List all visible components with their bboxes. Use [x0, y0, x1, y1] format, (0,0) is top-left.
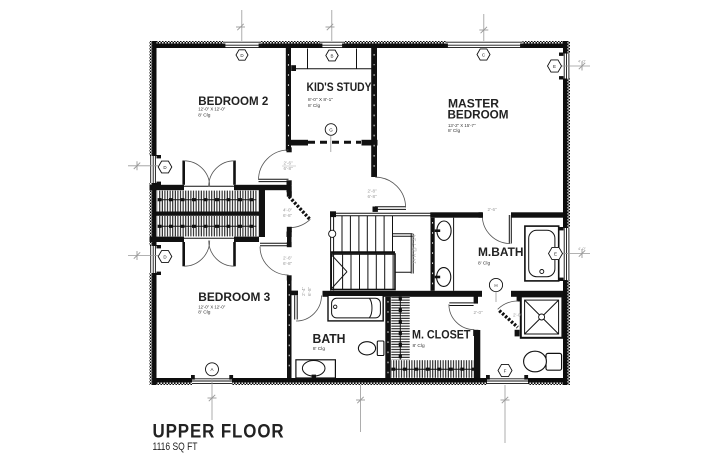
svg-text:2'-6": 2'-6": [283, 256, 293, 261]
svg-text:A: A: [210, 367, 213, 372]
svg-text:8' Clg: 8' Clg: [478, 260, 490, 266]
svg-text:2'-4": 2'-4": [301, 286, 306, 296]
svg-text:6'-8": 6'-8": [283, 261, 293, 266]
svg-text:2'-0": 2'-0": [474, 310, 484, 315]
svg-text:8' Clg: 8' Clg: [308, 103, 320, 109]
svg-text:KID'S STUDY: KID'S STUDY: [307, 80, 372, 94]
svg-text:8' Clg: 8' Clg: [448, 128, 460, 134]
svg-text:M. CLOSET: M. CLOSET: [412, 328, 471, 342]
svg-text:BEDROOM: BEDROOM: [448, 109, 509, 121]
svg-text:2'-0": 2'-0": [513, 313, 523, 318]
svg-text:8' Clg: 8' Clg: [313, 346, 325, 352]
svg-text:M.BATH: M.BATH: [478, 245, 524, 259]
svg-text:2'-6": 2'-6": [488, 207, 498, 212]
svg-text:B: B: [330, 53, 333, 58]
svg-text:14 R @ 7 3/4": 14 R @ 7 3/4": [412, 232, 418, 264]
svg-text:8'-0" X 8'-1": 8'-0" X 8'-1": [308, 97, 333, 103]
svg-text:UPPER FLOOR: UPPER FLOOR: [153, 422, 285, 443]
svg-text:BEDROOM 2: BEDROOM 2: [198, 96, 268, 108]
svg-text:G: G: [329, 127, 333, 132]
svg-text:8' Clg: 8' Clg: [413, 343, 425, 349]
svg-text:6'-8": 6'-8": [283, 213, 293, 218]
svg-text:8' Clg: 8' Clg: [198, 310, 210, 316]
svg-text:6'-8": 6'-8": [307, 286, 312, 296]
svg-text:2'-8": 2'-8": [368, 189, 378, 194]
svg-text:8' Clg: 8' Clg: [198, 113, 210, 119]
svg-text:E: E: [553, 64, 556, 69]
svg-text:6'-8": 6'-8": [284, 166, 294, 171]
svg-text:1116 SQ FT: 1116 SQ FT: [153, 441, 198, 453]
svg-text:E: E: [554, 251, 557, 256]
svg-text:F: F: [504, 368, 507, 373]
svg-text:H: H: [494, 283, 497, 288]
svg-text:6'-8": 6'-8": [368, 194, 378, 199]
svg-text:2'-6": 2'-6": [284, 161, 294, 166]
svg-text:12'-0" X 12'-0": 12'-0" X 12'-0": [198, 107, 225, 113]
svg-text:BEDROOM 3: BEDROOM 3: [198, 292, 270, 304]
svg-text:BATH: BATH: [313, 332, 346, 346]
svg-text:4'-0": 4'-0": [283, 208, 293, 213]
